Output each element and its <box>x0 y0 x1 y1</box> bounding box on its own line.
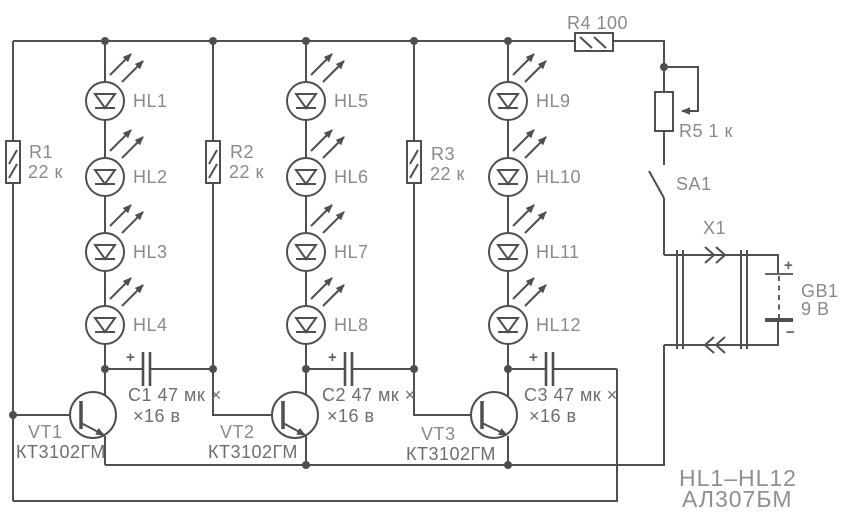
led-circle <box>86 158 124 196</box>
led-circle <box>287 306 325 344</box>
junction-dot <box>101 37 109 45</box>
capacitor-plates <box>546 352 553 386</box>
resistor-R1-value-label: 22 к <box>28 162 63 182</box>
junction-dot <box>504 461 512 469</box>
led-emission-arrows <box>323 212 344 233</box>
connector-X1-label: X1 <box>703 218 726 238</box>
led-circle <box>287 233 325 271</box>
led-emission-arrows <box>122 61 143 82</box>
capacitor-C2-value-line2: ×16 в <box>327 406 375 426</box>
battery-GB1-value-label: 9 В <box>801 299 830 319</box>
led-HL9-label: HL9 <box>536 91 571 111</box>
note: HL1–HL12 АЛ307БМ <box>679 465 797 512</box>
led-HL8: HL8 <box>287 278 369 344</box>
resistor-body <box>6 141 20 183</box>
led-emission-arrows <box>311 130 332 151</box>
capacitor-plates <box>345 352 352 386</box>
connector-X1: X1 <box>677 218 747 353</box>
led-emission-arrows <box>311 205 332 226</box>
led-emission-arrows <box>110 278 131 299</box>
led-HL5-label: HL5 <box>334 91 369 111</box>
transistor-VT2: VT2 КТ3102ГМ <box>208 392 318 462</box>
capacitor-C1-plus-sign: + <box>126 349 135 366</box>
resistor-R4-label: R4 100 <box>567 13 628 33</box>
potentiometer-R5-label: R5 1 к <box>679 121 733 141</box>
led-emission-arrows <box>311 278 332 299</box>
led-emission-arrows <box>122 137 143 158</box>
top-bus-wire <box>13 41 664 67</box>
resistor-body <box>206 141 220 183</box>
led-circle <box>86 82 124 120</box>
capacitor-C1-value-line1: C1 47 мк × <box>128 385 222 405</box>
junction-dot <box>9 411 17 419</box>
led-HL3-label: HL3 <box>133 242 168 262</box>
led-circle <box>287 158 325 196</box>
transistor-circle <box>70 392 116 438</box>
led-circle <box>86 233 124 271</box>
r3-branch-wire <box>414 41 482 415</box>
led-emission-arrows <box>323 137 344 158</box>
resistor-R1-ref-label: R1 <box>29 142 53 162</box>
led-emission-arrows <box>110 54 131 75</box>
led-HL5: HL5 <box>287 54 369 120</box>
switch-blade <box>649 171 664 198</box>
junction-dot <box>209 37 217 45</box>
led-HL1: HL1 <box>86 54 168 120</box>
junction-dot <box>101 365 109 373</box>
capacitor-C3-value-line2: ×16 в <box>529 406 577 426</box>
led-HL2: HL2 <box>86 130 168 196</box>
connector-plug-chevrons <box>705 247 725 353</box>
battery-GB1: + − GB1 9 В <box>765 257 839 341</box>
switch-SA1: SA1 <box>649 171 712 198</box>
potentiometer-R5: R5 1 к <box>655 92 733 141</box>
battery-GB1-ref-label: GB1 <box>801 281 839 301</box>
led-emission-arrows <box>110 205 131 226</box>
led-HL11-label: HL11 <box>536 242 580 262</box>
led-HL3: HL3 <box>86 205 168 271</box>
resistor-R2-value-label: 22 к <box>229 162 264 182</box>
resistor-body <box>407 141 421 183</box>
battery-plus-sign: + <box>784 257 793 274</box>
r5-switch-chain-wire <box>664 67 778 345</box>
led-HL6: HL6 <box>287 130 369 196</box>
led-emission-arrows <box>525 61 546 82</box>
transistor-VT3-part-label: КТ3102ГМ <box>406 444 496 464</box>
junction-dot <box>302 37 310 45</box>
transistor-circle <box>272 392 318 438</box>
led-circle <box>287 82 325 120</box>
resistor-R2: R2 22 к <box>206 141 264 183</box>
led-emission-arrows <box>513 278 534 299</box>
battery-minus-sign: − <box>786 324 795 341</box>
junction-dot <box>302 365 310 373</box>
led-HL10: HL10 <box>489 130 581 196</box>
led-emission-arrows <box>110 130 131 151</box>
emitter-bus-wire <box>105 345 664 465</box>
led-HL2-label: HL2 <box>133 167 168 187</box>
junction-dot <box>504 37 512 45</box>
led-circle <box>489 233 527 271</box>
transistor-VT1-part-label: КТ3102ГМ <box>16 442 106 462</box>
capacitor-C2: + C2 47 мк × ×16 в <box>322 349 416 426</box>
led-HL1-label: HL1 <box>133 91 168 111</box>
resistor-R3: R3 22 к <box>407 141 465 184</box>
capacitor-C2-plus-sign: + <box>328 349 337 366</box>
led-HL7: HL7 <box>287 205 369 271</box>
potentiometer-body <box>655 92 673 131</box>
led-HL7-label: HL7 <box>334 242 369 262</box>
switch-SA1-label: SA1 <box>676 174 712 194</box>
led-HL8-label: HL8 <box>334 315 369 335</box>
capacitor-C1-value-line2: ×16 в <box>133 406 181 426</box>
connector-contact-bars <box>677 250 747 349</box>
transistor-VT1-ref-label: VT1 <box>28 422 63 442</box>
led-emission-arrows <box>513 54 534 75</box>
junction-dot <box>209 365 217 373</box>
resistor-R3-ref-label: R3 <box>431 144 455 164</box>
capacitor-C3: + C3 47 мк × ×16 в <box>524 349 618 426</box>
led-HL4-label: HL4 <box>133 315 168 335</box>
note-line2: АЛ307БМ <box>682 486 793 512</box>
transistor-VT2-ref-label: VT2 <box>220 422 255 442</box>
resistor-R1: R1 22 к <box>6 141 63 183</box>
led-emission-arrows <box>122 285 143 306</box>
led-emission-arrows <box>323 285 344 306</box>
transistor-VT3-ref-label: VT3 <box>421 424 456 444</box>
junction-dot <box>504 365 512 373</box>
led-HL9: HL9 <box>489 54 571 120</box>
led-emission-arrows <box>525 212 546 233</box>
junction-dot <box>660 63 668 71</box>
led-emission-arrows <box>513 130 534 151</box>
junction-dot <box>302 461 310 469</box>
led-HL10-label: HL10 <box>536 167 581 187</box>
led-circle <box>489 158 527 196</box>
led-HL6-label: HL6 <box>334 167 369 187</box>
junction-dot <box>410 37 418 45</box>
led-HL12: HL12 <box>489 278 581 344</box>
capacitor-C3-plus-sign: + <box>529 349 538 366</box>
transistor-circle <box>471 392 517 438</box>
resistor-R4: R4 100 <box>567 13 628 51</box>
led-HL11: HL11 <box>489 205 580 271</box>
led-emission-arrows <box>323 61 344 82</box>
resistor-body <box>575 33 613 51</box>
led-emission-arrows <box>525 137 546 158</box>
junction-dot <box>410 365 418 373</box>
led-emission-arrows <box>525 285 546 306</box>
capacitor-C1: + C1 47 мк × ×16 в <box>126 349 222 426</box>
led-emission-arrows <box>311 54 332 75</box>
resistor-R2-ref-label: R2 <box>230 142 254 162</box>
transistor-VT1: VT1 КТ3102ГМ <box>16 392 116 462</box>
led-circle <box>86 306 124 344</box>
led-emission-arrows <box>513 205 534 226</box>
capacitor-C2-value-line1: C2 47 мк × <box>322 385 416 405</box>
circuit-schematic: R1 22 к R2 22 к R3 22 к R4 100 R5 1 к HL… <box>0 0 841 515</box>
schematic-page: R1 22 к R2 22 к R3 22 к R4 100 R5 1 к HL… <box>0 0 841 515</box>
led-emission-arrows <box>122 212 143 233</box>
transistor-VT2-part-label: КТ3102ГМ <box>208 442 298 462</box>
capacitor-plates <box>143 352 150 386</box>
transistor-VT3: VT3 КТ3102ГМ <box>406 392 517 464</box>
resistor-R3-value-label: 22 к <box>430 164 465 184</box>
r2-branch-wire <box>213 41 283 415</box>
led-circle <box>489 306 527 344</box>
led-HL4: HL4 <box>86 278 168 344</box>
led-circle <box>489 82 527 120</box>
capacitor-C3-value-line1: C3 47 мк × <box>524 385 618 405</box>
led-HL12-label: HL12 <box>536 315 581 335</box>
